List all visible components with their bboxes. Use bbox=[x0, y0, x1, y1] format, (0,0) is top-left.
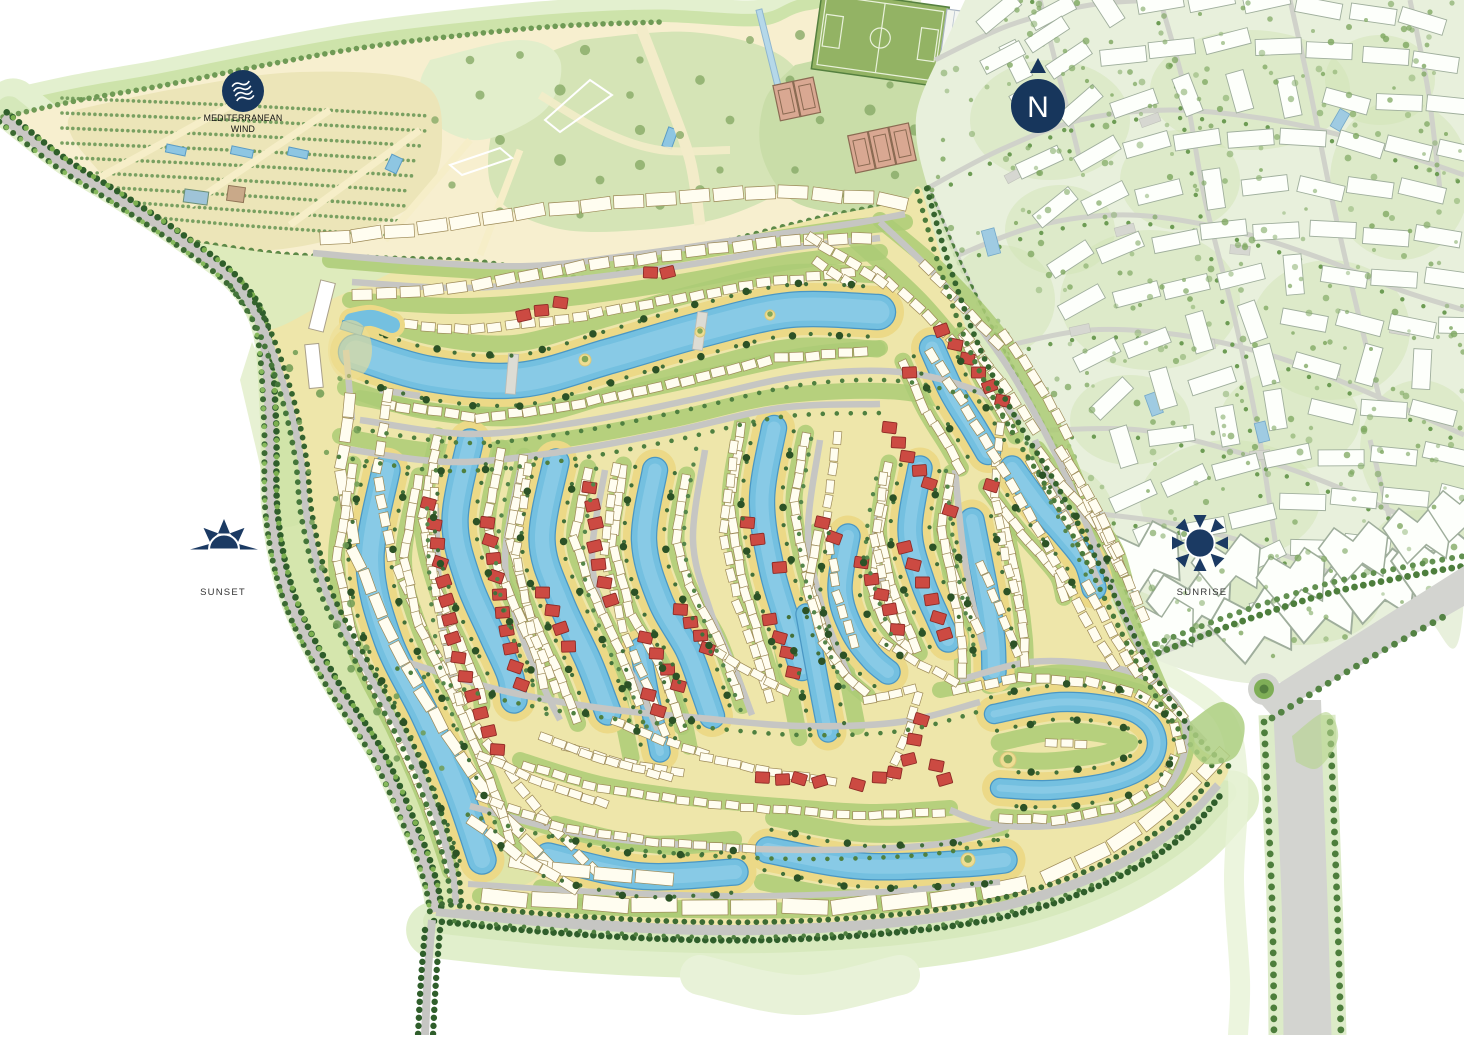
svg-text:SUNRISE: SUNRISE bbox=[1177, 587, 1228, 598]
svg-text:N: N bbox=[1027, 91, 1049, 124]
svg-text:SUNSET: SUNSET bbox=[200, 587, 246, 598]
svg-text:MEDITERRANEAN: MEDITERRANEAN bbox=[204, 113, 283, 123]
svg-text:WIND: WIND bbox=[231, 124, 255, 134]
